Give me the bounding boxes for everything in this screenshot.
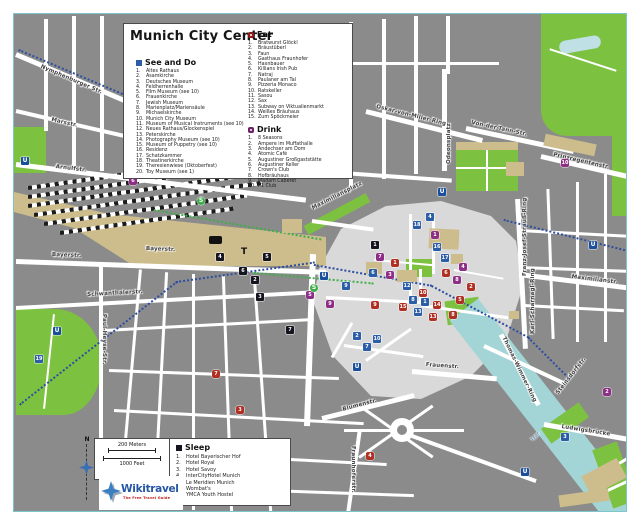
marker-eat-7: 7 — [212, 370, 220, 378]
tram-stop-letter: T — [241, 247, 247, 257]
legend-eat-drink-column: Eat 1.Bratwurst Glöckl2.Bräustüberl3.Fau… — [248, 30, 352, 189]
marker-eat-15: 15 — [399, 303, 407, 311]
street-n-v2 — [382, 19, 386, 179]
compass-star-icon — [79, 460, 94, 475]
marker-see-6: 6 — [369, 269, 377, 277]
sleep-header: Sleep — [176, 443, 284, 452]
drink-header: Drink — [248, 125, 352, 134]
marker-see-12: 12 — [403, 282, 411, 290]
sleep-list: 1.Hotel Bayerischer Hof2.Hotel Royal3.Ho… — [176, 454, 284, 499]
sbahn-icon: S — [310, 284, 318, 292]
see-do-label: See and Do — [145, 58, 196, 67]
legend-item-text: Toy Museum (see 1) — [146, 170, 194, 175]
compass: N — [76, 436, 98, 502]
marker-drink-4: 4 — [459, 263, 467, 271]
marker-eat-10: 10 — [419, 289, 427, 297]
marker-eat-6: 6 — [442, 269, 450, 277]
legend-item-text: YMCA Youth Hostel — [186, 492, 233, 498]
marker-see-17: 17 — [441, 254, 449, 262]
street-v1 — [44, 19, 48, 131]
marker-eat-8: 8 — [449, 311, 457, 319]
street-label-odeonsplatz: Odeonsplatz — [446, 123, 452, 164]
marker-drink-8: 8 — [453, 276, 461, 284]
drink-bullet-icon — [248, 127, 254, 133]
ubahn-icon: U — [53, 327, 61, 335]
marker-see-4: 4 — [426, 213, 434, 221]
street-label-franz-josef-strauss-ring: Franz-Josef-Strauß-Ring — [522, 198, 528, 276]
gaertnerplatz-center — [397, 425, 407, 435]
marker-see-2: 2 — [353, 332, 361, 340]
marker-drink-7: 7 — [376, 253, 384, 261]
street-label-karl-scharnagl-ring: Karl-Scharnagl-Ring — [530, 268, 536, 334]
scale-meters-label: 200 Meters — [101, 442, 163, 448]
screenshot: T — [0, 0, 640, 525]
marker-sleep-7: 7 — [286, 326, 294, 334]
legend-item: 15.Zum Spöckmeier — [248, 115, 352, 120]
marker-sleep-6: 6 — [239, 267, 247, 275]
street-lehel-v3 — [604, 174, 607, 342]
see-do-bullet-icon — [136, 60, 142, 66]
marker-sleep-1: 1 — [371, 241, 379, 249]
marker-see-7: 7 — [363, 343, 371, 351]
compass-north-label: N — [76, 436, 98, 443]
marker-see-3: 3 — [561, 433, 569, 441]
street-v2 — [72, 16, 76, 166]
street-blumenstr — [321, 393, 414, 421]
map-canvas: T — [13, 13, 627, 512]
drink-label: Drink — [257, 125, 281, 134]
eat-label: Eat — [257, 30, 272, 39]
building-neues-rathaus — [397, 270, 417, 282]
sbahn-icon: S — [197, 197, 205, 205]
marker-see-10: 10 — [373, 335, 381, 343]
street-sonnenstr — [304, 254, 316, 426]
marker-see-19: 19 — [35, 355, 43, 363]
street-corneliusstr — [411, 434, 536, 483]
street-n-h1 — [334, 62, 499, 65]
marker-eat-13: 13 — [429, 313, 437, 321]
marker-see-13: 13 — [414, 308, 422, 316]
marker-eat-4: 4 — [366, 452, 374, 460]
legend-box: Munich City Center See and Do 1.Altes Ra… — [123, 23, 353, 179]
marker-eat-2: 2 — [467, 283, 475, 291]
marker-see-18: 18 — [413, 221, 421, 229]
river-label-isar: Isar — [530, 431, 541, 442]
scale-feet-bar — [103, 458, 161, 459]
marker-sleep-2: 2 — [251, 276, 259, 284]
legend-item: 20.Toy Museum (see 1) — [136, 170, 246, 175]
legend-item-text: P1 Club — [258, 184, 276, 189]
marker-sleep-5: 5 — [263, 253, 271, 261]
logo-tagline: The Free Travel Guide — [123, 496, 170, 500]
street-sw-h1 — [109, 369, 339, 380]
ubahn-icon: U — [589, 241, 597, 249]
street-label-steinsdorfstr: Steinsdorfstr. — [555, 357, 587, 396]
park-englischer-garten — [541, 14, 627, 136]
legend-item-number: 20. — [136, 170, 144, 175]
ubahn-icon: U — [438, 188, 446, 196]
marker-drink-10: 10 — [561, 159, 569, 167]
see-do-list: 1.Altes Rathaus2.Asamkirche3.Deutsches M… — [136, 69, 246, 175]
park-theresienwiese — [16, 309, 102, 415]
legend-item-number: 15. — [248, 115, 256, 120]
marker-drink-1: 1 — [431, 231, 439, 239]
eat-header: Eat — [248, 30, 352, 39]
logo-name: Wikitravel — [121, 483, 179, 495]
sleep-bullet-icon — [176, 445, 182, 451]
scale-box: 200 Meters 1000 Feet — [94, 438, 170, 480]
hofgarten-path-v — [486, 146, 488, 191]
building-isartor — [509, 311, 519, 319]
marker-drink-9: 9 — [326, 300, 334, 308]
marker-sleep-4: 4 — [216, 253, 224, 261]
marker-eat-3: 3 — [236, 406, 244, 414]
building-staatskanzlei — [506, 162, 524, 176]
street-label-schwanthalerstr: Schwanthalerstr. — [87, 289, 143, 298]
street-lehel-v2 — [576, 182, 579, 342]
ubahn-icon: U — [21, 157, 29, 165]
marker-drink-3: 3 — [386, 271, 394, 279]
ubahn-icon: U — [320, 272, 328, 280]
building-hofgarten-north — [456, 142, 518, 150]
legend-item: 10.P1 Club — [248, 184, 352, 189]
marker-eat-14: 14 — [433, 301, 441, 309]
marker-eat-1: 1 — [391, 259, 399, 267]
street-label-bayerstr-2: Bayerstr. — [146, 246, 176, 253]
eat-list: 1.Bratwurst Glöckl2.Bräustüberl3.Faun4.G… — [248, 41, 352, 120]
street-label-bayerstr-1: Bayerstr. — [52, 252, 82, 259]
ubahn-icon: U — [353, 363, 361, 371]
sleep-box: Sleep 1.Hotel Bayerischer Hof2.Hotel Roy… — [169, 438, 291, 506]
legend-item: 7.YMCA Youth Hostel — [176, 492, 284, 498]
see-do-header: See and Do — [136, 58, 246, 67]
scale-meters-bar — [108, 450, 156, 451]
marker-see-1: 1 — [421, 298, 429, 306]
sleep-label: Sleep — [185, 443, 210, 452]
marker-drink-2: 2 — [603, 388, 611, 396]
marker-see-9: 9 — [342, 282, 350, 290]
drink-list: 1.8 Seasons2.Ampere im Muffathalle3.Ande… — [248, 136, 352, 189]
wikitravel-star-icon — [101, 481, 121, 501]
eat-bullet-icon — [248, 32, 254, 38]
street-lehel-v1 — [546, 189, 554, 339]
logo-box: Wikitravel The Free Travel Guide — [99, 476, 183, 510]
legend-see-do-section: See and Do 1.Altes Rathaus2.Asamkirche3.… — [136, 58, 246, 175]
marker-see-8: 8 — [409, 296, 417, 304]
street-lehel-h3 — [524, 304, 624, 312]
legend-item-text: Zum Spöckmeier — [258, 115, 299, 120]
marker-drink-5: 5 — [306, 291, 314, 299]
legend-item-number: 10. — [248, 184, 256, 189]
marker-see-16: 16 — [433, 243, 441, 251]
train-station-icon — [209, 236, 222, 244]
marker-sleep-3: 3 — [256, 293, 264, 301]
street-n-v3 — [414, 16, 418, 174]
building-justizpalast — [282, 219, 302, 233]
street-label-paul-heyse: Paul-Heyse-Str. — [101, 314, 107, 365]
street-n-v4 — [446, 16, 450, 74]
marker-eat-9: 9 — [371, 301, 379, 309]
ubahn-icon: U — [521, 468, 529, 476]
marker-eat-5: 5 — [456, 296, 464, 304]
scale-feet-label: 1000 Feet — [101, 461, 163, 467]
street-label-fraunhoferstr: Fraunhoferstr. — [350, 446, 356, 493]
